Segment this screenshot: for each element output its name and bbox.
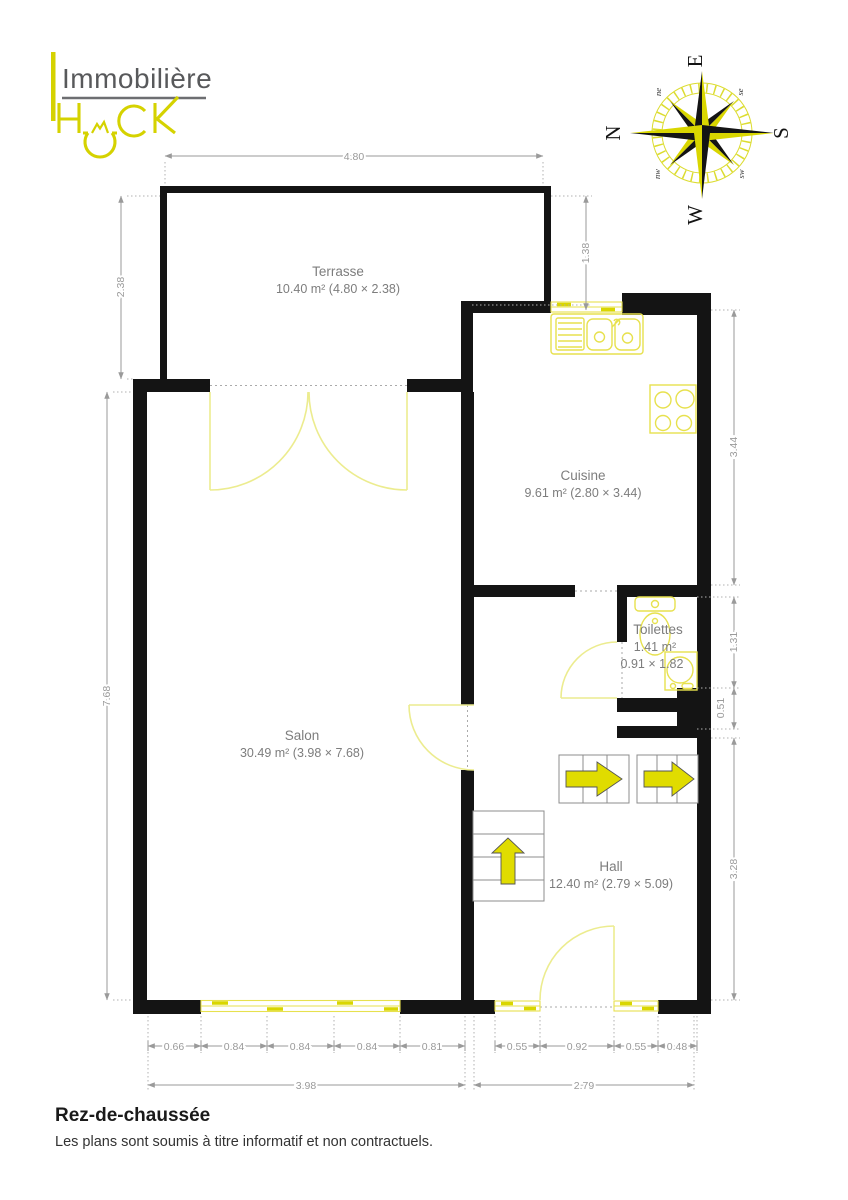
dim-left-salon: 7.68 (101, 686, 113, 707)
windows (201, 302, 658, 1012)
door-toilettes (561, 642, 617, 698)
compass-s: S (769, 127, 793, 139)
door-salon-hall (409, 705, 474, 770)
compass-ne: ne (653, 88, 663, 96)
dim-top: 4.80 (344, 151, 365, 163)
svg-text:0.55: 0.55 (626, 1041, 647, 1053)
compass-nw: nw (652, 169, 662, 179)
cooktop-icon (650, 385, 696, 433)
hack-logotype-icon (59, 97, 178, 157)
svg-text:0.84: 0.84 (357, 1041, 378, 1053)
dim-right-kitchen: 3.44 (728, 437, 740, 458)
compass-sw: sw (736, 169, 746, 178)
dim-right-top: 1.38 (580, 243, 592, 264)
window-salon (201, 1001, 400, 1012)
svg-text:Salon: Salon (285, 728, 320, 743)
dim-left-terrace: 2.38 (115, 277, 127, 298)
svg-text:0.55: 0.55 (507, 1041, 528, 1053)
logo: Immobilière (51, 52, 212, 157)
svg-text:1.41 m²: 1.41 m² (634, 640, 676, 654)
svg-text:0.84: 0.84 (290, 1041, 311, 1053)
floor-disclaimer: Les plans sont soumis à titre informatif… (55, 1134, 433, 1150)
footer: Rez-de-chaussée Les plans sont soumis à … (55, 1105, 433, 1150)
svg-text:12.40 m² (2.79 × 5.09): 12.40 m² (2.79 × 5.09) (549, 877, 673, 891)
svg-text:Cuisine: Cuisine (560, 468, 605, 483)
dim-right-wc: 1.31 (728, 632, 740, 653)
svg-text:Terrasse: Terrasse (312, 264, 364, 279)
room-label-cuisine: Cuisine 9.61 m² (2.80 × 3.44) (524, 468, 641, 500)
compass-se: se (735, 88, 745, 95)
dim-right-jog: 0.51 (715, 698, 727, 719)
door-entrance (540, 926, 614, 1000)
svg-text:Toilettes: Toilettes (633, 622, 683, 637)
dim-total-right: 2.79 (574, 1080, 595, 1092)
room-label-salon: Salon 30.49 m² (3.98 × 7.68) (240, 728, 364, 760)
floorplan-page: Immobilière E N S W (0, 0, 848, 1200)
svg-text:0.91 × 1.82: 0.91 × 1.82 (621, 657, 684, 671)
room-label-toilettes: Toilettes 1.41 m² 0.91 × 1.82 (621, 622, 684, 671)
dim-total-left: 3.98 (296, 1080, 317, 1092)
compass-rose-icon: E N S W ne se sw nw (601, 55, 793, 225)
svg-text:10.40 m² (4.80 × 2.38): 10.40 m² (4.80 × 2.38) (276, 282, 400, 296)
svg-text:Hall: Hall (599, 859, 622, 874)
room-label-hall: Hall 12.40 m² (2.79 × 5.09) (549, 859, 673, 891)
floor-title: Rez-de-chaussée (55, 1105, 210, 1126)
svg-text:0.81: 0.81 (422, 1041, 443, 1053)
kitchen-sink-icon (551, 314, 643, 354)
logo-bar (51, 52, 56, 121)
compass-w: W (683, 205, 707, 225)
svg-text:0.66: 0.66 (164, 1041, 185, 1053)
svg-text:0.92: 0.92 (567, 1041, 588, 1053)
compass-e: E (683, 55, 707, 68)
compass-n: N (601, 125, 625, 140)
agency-name: Immobilière (62, 63, 212, 94)
svg-text:0.84: 0.84 (224, 1041, 245, 1053)
svg-text:9.61 m² (2.80 × 3.44): 9.61 m² (2.80 × 3.44) (524, 486, 641, 500)
door-terrace-french (210, 392, 407, 490)
doors (210, 392, 617, 1000)
svg-text:30.49 m² (3.98 × 7.68): 30.49 m² (3.98 × 7.68) (240, 746, 364, 760)
room-label-terrasse: Terrasse 10.40 m² (4.80 × 2.38) (276, 264, 400, 296)
floorplan-canvas: Immobilière E N S W (0, 0, 848, 1200)
svg-text:0.48: 0.48 (667, 1041, 688, 1053)
dim-right-hall: 3.28 (728, 859, 740, 880)
